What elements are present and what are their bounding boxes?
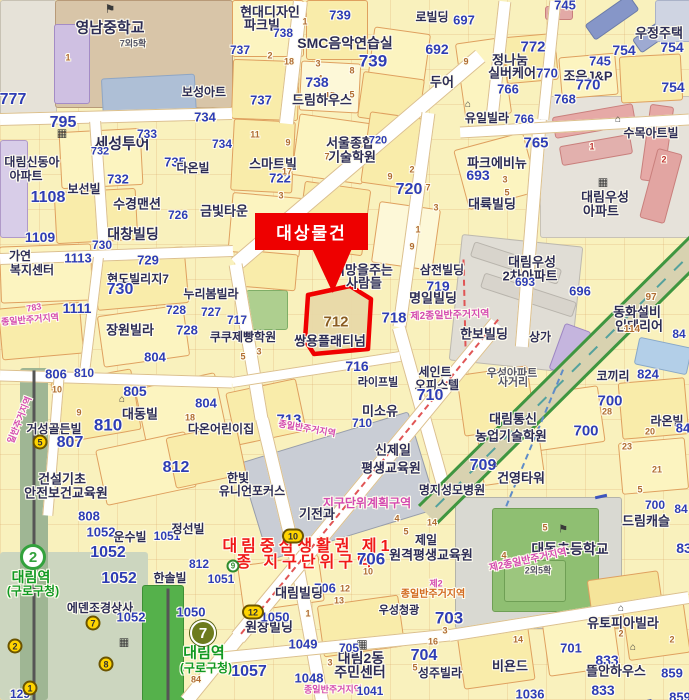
map-label: 2 (661, 156, 666, 165)
map-label: ⌂ (618, 604, 624, 614)
map-label: 754 (612, 43, 635, 57)
map-label: 807 (57, 435, 84, 451)
map-label: 대림우성 (581, 191, 629, 204)
map-label: 1048 (295, 672, 324, 685)
map-label: 성주빌라 (418, 667, 462, 679)
map-label: ⚑ (105, 3, 116, 15)
map-label: 810 (94, 417, 122, 434)
map-label: 기술학원 (328, 151, 376, 164)
map-label: 833 (591, 683, 614, 697)
map-label: 12 (340, 585, 350, 594)
map-label: 우정주택 (635, 27, 683, 40)
map-label: 명지성모병원 (419, 484, 485, 496)
map-label: 730 (92, 239, 112, 251)
map-label: 712 (323, 315, 348, 330)
map-label: 734 (212, 138, 232, 150)
subway-line7-badge: 7 (190, 620, 216, 646)
map-label: 766 (497, 83, 519, 96)
map-label: 692 (425, 42, 448, 56)
map-label: 수경맨션 (113, 198, 161, 211)
map-label: 5 (240, 353, 245, 362)
map-canvas[interactable]: 영남중학교⚑7외5확7771보성아트734734795대림신동아아파트▦세성투어… (0, 0, 689, 700)
map-label: 2 (409, 166, 414, 175)
map-label: 주민센터 (334, 665, 386, 679)
map-label: 한솔빌 (153, 572, 186, 584)
map-label: 720 (369, 136, 387, 147)
map-label: 23 (622, 443, 632, 452)
map-label: 유일빌라 (465, 112, 509, 124)
map-label: 1050 (261, 611, 290, 624)
map-label: 7 (425, 184, 430, 193)
map-label: 3 (256, 348, 261, 357)
exit-5-badge: 5 (33, 435, 48, 450)
map-label: 쌍용플래티넘 (294, 335, 366, 348)
map-label: 3 (442, 627, 447, 636)
map-label: ⌂ (492, 460, 498, 470)
map-label: 3 (278, 192, 283, 201)
map-label: 5 (504, 189, 509, 198)
map-label: 706 (357, 551, 385, 568)
map-label: 9 (285, 139, 290, 148)
map-label: 733 (137, 128, 157, 140)
map-label: 원격평생교육원 (389, 549, 473, 562)
map-label: 710 (417, 388, 444, 404)
map-label: 693 (466, 168, 489, 182)
map-label: 2 (669, 636, 674, 645)
map-label: 4 (501, 552, 506, 561)
map-label: 3 (433, 204, 438, 213)
map-label: 2외5확 (525, 567, 552, 576)
map-label: 건영타워 (497, 472, 545, 485)
map-label: 3 (315, 60, 320, 69)
map-label: 14 (513, 636, 523, 645)
map-label: 제2 (429, 580, 442, 589)
map-label: ▦ (119, 638, 129, 649)
map-label: 8 (349, 67, 354, 76)
map-label: (구로구청) (180, 662, 232, 674)
map-label: 1113 (64, 252, 92, 265)
map-label: 삼전빌딩 (420, 264, 464, 276)
map-label: 농업기술학원 (475, 430, 547, 443)
map-label: 종 지구단위구역 (236, 555, 376, 571)
map-label: 9 (387, 173, 392, 182)
map-label: 730 (107, 282, 134, 298)
map-label: 770 (536, 67, 558, 80)
map-label: 대창빌딩 (107, 227, 159, 241)
map-label: 대림빌딩 (275, 587, 323, 600)
map-label: 97 (645, 293, 656, 303)
map-label: 10 (52, 386, 62, 395)
map-label: 718 (381, 311, 406, 326)
map-label: 777 (0, 92, 26, 108)
map-label: 700 (645, 499, 665, 511)
map-label: 738 (305, 75, 328, 89)
map-label: 영남중학교 (75, 21, 144, 36)
map-label: 1041 (357, 685, 384, 697)
map-label: 1051 (208, 573, 235, 585)
map-label: 859 (661, 667, 683, 680)
map-label: 기전과 (299, 508, 335, 521)
map-label: 806 (45, 368, 67, 381)
map-label: 28 (602, 408, 612, 417)
map-label: 쿠쿠제빵학원 (210, 331, 276, 343)
boundary-line (33, 370, 36, 700)
map-label: 13 (334, 597, 344, 606)
map-label: 아파트 (9, 170, 42, 182)
map-label: ▦ (598, 178, 608, 189)
map-label: 727 (201, 306, 221, 318)
map-label: 21 (652, 466, 662, 475)
map-label: 수목아트빌 (623, 127, 678, 139)
map-label: 1 (302, 18, 307, 27)
map-label: 1057 (231, 664, 267, 680)
map-label: 703 (435, 610, 463, 627)
route-10-badge: 10 (282, 529, 304, 544)
map-label: 9 (463, 58, 468, 67)
map-label: 종일반주거지역 (401, 590, 465, 600)
map-label: 제일 (415, 534, 437, 546)
map-label: 드림하우스 (292, 94, 352, 107)
map-label: 720 (396, 182, 423, 198)
map-label: 동화설비 (613, 306, 661, 319)
map-label: 상가 (529, 331, 551, 343)
map-label: 아파트 (583, 205, 619, 218)
map-label: 1 (589, 143, 594, 152)
map-label: 745 (554, 0, 576, 12)
callout-label: 대상물건 (276, 219, 347, 244)
map-label: 696 (569, 285, 591, 298)
map-label: 804 (195, 397, 217, 410)
map-label: 두어 (430, 76, 454, 89)
map-label: 대림역 (183, 646, 224, 661)
map-label: 2 (267, 52, 272, 61)
map-label: 종일반주거지역 (304, 686, 362, 695)
map-label: 세인트 (418, 366, 451, 378)
map-label: 1036 (516, 688, 545, 700)
map-label: ⌂ (615, 115, 621, 125)
boundary-line (167, 588, 170, 700)
map-label: ⚑ (558, 525, 568, 536)
map-label: 10 (363, 568, 373, 577)
map-zone (584, 0, 639, 41)
map-label: 1049 (289, 638, 318, 651)
map-label: 평생교육원 (361, 462, 421, 475)
target-property-callout: 대상물건 (255, 213, 368, 250)
map-label: 717 (227, 314, 247, 326)
exit-8-badge: 8 (99, 657, 114, 672)
map-label: 732 (91, 147, 109, 158)
map-label: 765 (523, 136, 548, 151)
map-label: ⌂ (465, 100, 471, 110)
map-label: 697 (453, 14, 475, 27)
map-label: SMC음악연습실 (297, 36, 393, 50)
map-label: 코끼리 (596, 370, 629, 382)
map-label: 비욘드 (492, 660, 528, 673)
map-label: 지구단위계획구역 (323, 497, 411, 509)
map-label: 114 (624, 325, 640, 335)
exit-2-badge: 2 (8, 639, 23, 654)
map-label: 810 (74, 367, 94, 379)
map-label: 738 (273, 27, 293, 39)
map-label: 미소유 (362, 405, 398, 418)
map-label: 804 (144, 351, 166, 364)
map-label: 1 (65, 54, 70, 63)
map-label: 우성청광 (379, 606, 419, 617)
map-label: 1 (305, 610, 310, 619)
map-label: 7외5확 (120, 40, 147, 49)
map-label: 768 (554, 93, 576, 106)
map-label: 종일반주거지역 (278, 420, 337, 439)
map-label: 다온빌 (176, 162, 209, 174)
map-label: 대림통신 (489, 413, 537, 426)
map-label: 1109 (25, 230, 55, 244)
map-label: 유니언포커스 (219, 485, 285, 497)
map-label: 안전보건교육원 (24, 487, 108, 500)
map-label: 1 (415, 226, 420, 235)
map-label: 5 (637, 486, 642, 495)
map-label: 대륙빌딩 (468, 198, 516, 211)
map-label: 로빌딩 (415, 11, 448, 23)
map-label: 뜰안하우스 (586, 665, 646, 678)
map-label: 9 (409, 243, 414, 252)
map-label: 84 (191, 676, 201, 685)
map-label: 18 (185, 414, 195, 423)
exit-7-badge: 7 (86, 616, 101, 631)
map-label: ⌂ (119, 395, 125, 405)
map-label: 명일빌딩 (409, 292, 457, 305)
map-label: 대림우성 (508, 256, 556, 269)
map-label: 7 (324, 153, 329, 162)
map-label: 금빛타운 (200, 205, 248, 218)
map-label: 805 (123, 384, 146, 398)
map-label: 824 (637, 368, 659, 381)
map-label: 보선빌 (67, 183, 100, 195)
map-label: 710 (352, 417, 372, 429)
map-label: 1050 (177, 606, 206, 619)
map-label: 18 (284, 58, 294, 67)
map-label: 728 (176, 324, 198, 337)
map-label: 실버케어 (488, 67, 536, 80)
map-label: 739 (359, 53, 387, 70)
map-label: 737 (250, 94, 272, 107)
map-label: 1052 (87, 526, 116, 539)
map-label: 가연 (9, 250, 31, 262)
map-label: 812 (189, 558, 209, 570)
map-label: 84 (674, 503, 687, 515)
map-label: 신제일 (375, 444, 411, 457)
map-label: 17 (282, 168, 292, 177)
map-label: 859 (669, 691, 689, 700)
map-label: 한보빌딩 (460, 328, 508, 341)
map-label: 장원빌라 (106, 324, 154, 337)
map-label: 728 (166, 304, 186, 316)
map-label: 라이프빌 (358, 378, 398, 389)
map-label: 808 (78, 510, 100, 523)
map-label: 5 (542, 524, 547, 533)
map-label: 754 (661, 80, 684, 94)
map-label: 716 (345, 359, 368, 373)
map-label: 5 (412, 664, 417, 673)
map-label: 745 (589, 55, 611, 68)
map-label: 1108 (31, 190, 66, 206)
map-label: 737 (230, 44, 250, 56)
map-label: 701 (560, 642, 582, 655)
map-label: ▦ (57, 129, 67, 140)
map-label: 16 (428, 638, 438, 647)
map-label: 11 (250, 131, 260, 140)
map-label: 한빛 (227, 472, 249, 484)
map-label: 705 (339, 642, 359, 654)
map-label: 732 (107, 173, 129, 186)
map-label: 운수빌 (113, 531, 146, 543)
map-label: 복지센터 (10, 264, 54, 276)
map-label: 726 (168, 209, 188, 221)
map-label: 1052 (101, 571, 137, 587)
subway-line2-badge: 2 (20, 544, 46, 570)
map-label: 770 (575, 78, 600, 93)
map-label: 보성아트 (182, 86, 226, 98)
map-zone (142, 585, 184, 700)
map-label: 정선빌 (171, 523, 204, 535)
map-label: 1111 (63, 301, 92, 315)
map-label: 693 (515, 276, 535, 288)
map-label: 4 (394, 515, 399, 524)
map-label: 766 (514, 113, 534, 125)
map-label: (구로구청) (7, 585, 59, 597)
map-label: 739 (329, 9, 351, 22)
map-label: 1052 (117, 611, 146, 624)
map-label: 20 (645, 428, 655, 437)
map-label: 대동빌 (122, 408, 158, 421)
map-label: 대림역 (12, 570, 51, 584)
map-label: 3 (327, 659, 332, 668)
map-label: 사람들 (346, 277, 382, 290)
map-label: 754 (660, 40, 683, 54)
map-label: 9 (76, 409, 81, 418)
map-label: 83 (676, 541, 689, 555)
map-label: 84 (672, 328, 685, 340)
map-label: 734 (194, 111, 216, 124)
exit-1-badge: 1 (23, 681, 38, 696)
map-label: 2 (618, 630, 623, 639)
map-label: 5 (403, 528, 408, 537)
map-label: 812 (163, 460, 190, 476)
route-12-badge: 12 (242, 605, 264, 620)
map-label: 3 (502, 176, 507, 185)
map-label: 서울종합 (326, 137, 374, 150)
map-label: 드림캐슬 (622, 515, 670, 528)
map-label: 1052 (90, 545, 126, 561)
map-label: 84 (676, 422, 689, 435)
map-label: ⌂ (630, 643, 636, 653)
map-label: 다온어린이집 (188, 423, 254, 435)
map-label: 사거리 (498, 378, 528, 389)
map-label: 누리봄빌라 (183, 288, 238, 300)
map-label: 건설기초 (38, 473, 86, 486)
map-label: 14 (427, 519, 437, 528)
map-label: 729 (137, 254, 159, 267)
map-label: 700 (573, 424, 598, 439)
bus-9-badge: 9 (227, 560, 240, 573)
map-label: 대림신동아 (4, 156, 59, 168)
